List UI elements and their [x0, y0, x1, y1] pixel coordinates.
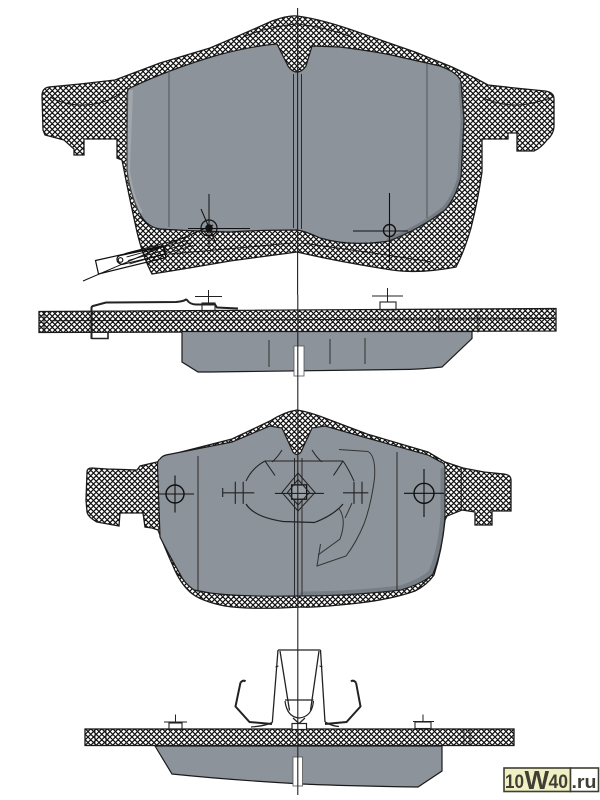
svg-text:.ru: .ru	[572, 771, 597, 792]
svg-text:W: W	[525, 765, 550, 795]
svg-text:40: 40	[549, 772, 569, 793]
svg-text:10: 10	[505, 772, 524, 793]
